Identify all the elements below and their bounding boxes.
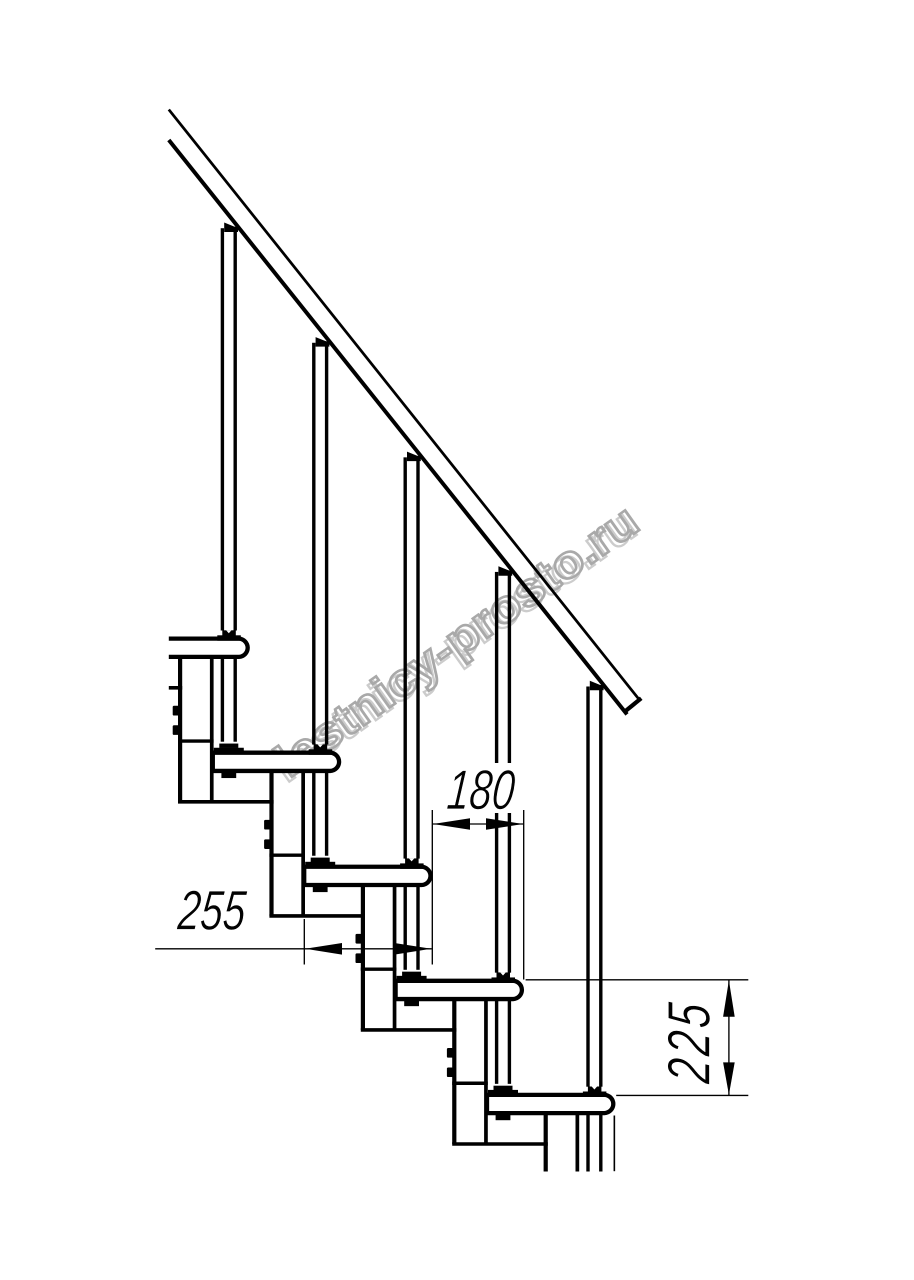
svg-text:180: 180: [445, 760, 518, 822]
svg-text:255: 255: [175, 880, 249, 942]
svg-text:225: 225: [657, 997, 723, 1087]
